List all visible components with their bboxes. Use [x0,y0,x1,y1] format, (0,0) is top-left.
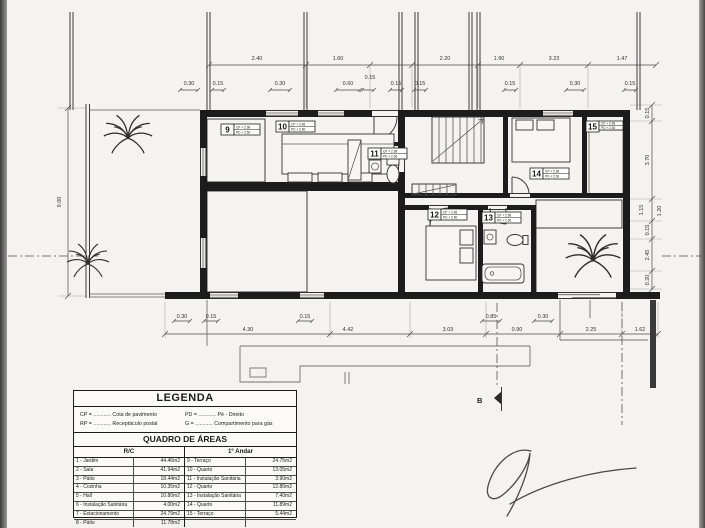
room-name-cell: 13 - Instalação Sanitária [185,493,246,501]
dim-label: 0.15 [625,81,636,87]
room-name-cell [185,520,246,528]
room-area-cell: 11.89m2 [246,502,296,510]
areas-table-headers: R/C 1º Andar [74,447,296,458]
table-row: 11 - Instalação Sanitária3.90m2 [185,476,296,485]
dim-label: 0.15 [505,81,516,87]
room-name-cell: 15 - Terraço [185,511,246,519]
room-area-cell: 24.75m2 [246,458,296,466]
bed-room-12 [426,226,476,280]
section-marker-label: B [477,396,483,405]
room-cp-tag: CP + 2.98 [443,210,457,214]
toilet-room-13 [507,235,528,246]
room-area-cell: 12.86m2 [246,484,296,492]
room-number: 9 [225,126,230,135]
room-label-11: 11 CP + 2.98 PD + 2.60 [368,148,407,159]
room-label-15: 15 CP + 2.98 PD + 2.60 [586,121,623,132]
room-number: 14 [532,170,541,179]
walls [165,110,660,299]
room-cp-tag: CP + 2.98 [236,125,250,129]
table-row: 9 - Terraço24.75m2 [185,458,296,467]
room-number: 11 [370,150,379,159]
room-name-cell: 8 - Pátio [74,520,134,528]
room-pd-tag: PD + 2.60 [383,155,397,159]
table-row: 3 - Pátio18.44m2 [74,476,184,485]
dim-label: 0.90 [512,327,523,333]
dim-label: 0.30 [275,81,286,87]
dim-label: 0.30 [570,81,581,87]
dim-label: 0.15 [415,81,426,87]
toilet-room-11 [387,158,399,183]
dim-label: 0.15 [300,314,311,320]
room-area-cell: 10.35m2 [134,484,184,492]
dim-label: 2.45 [645,250,651,261]
table-row: 12 - Quarto12.86m2 [185,484,296,493]
room-name-cell: 6 - Instalação Sanitária [74,502,134,510]
dim-label: 0.15 [645,225,651,236]
room-area-cell: 10.80m2 [134,493,184,501]
room-pd-tag: PD + 2.60 [497,219,511,223]
bed-room-14 [512,118,570,162]
areas-column-first-floor: 9 - Terraço24.75m2 10 - Quarto13.05m2 11… [185,458,296,527]
dim-label: 3.70 [645,155,651,166]
palm-tree-icon [104,115,152,153]
dim-label: 0.30 [184,81,195,87]
room-pd-tag: PD + 2.60 [291,128,305,132]
table-row: 1 - Jardim44.46m2 [74,458,184,467]
staircase [412,117,484,195]
bathtub-room-13 [482,264,524,283]
dim-label: 2.20 [440,56,451,62]
dim-label: 1.47 [617,56,628,62]
room-pd-tag: PD + 2.60 [236,131,250,135]
left-dimension-chain: 9.00 [8,105,98,299]
room-label-12: 12 CP + 2.98 PD + 2.60 [428,209,467,220]
areas-table-body: 1 - Jardim44.46m2 2 - Sala41.94m2 3 - Pá… [74,458,296,527]
room-area-cell: 24.79m2 [134,511,184,519]
room-area-cell: 41.94m2 [134,467,184,475]
dim-label: 0.15 [391,81,402,87]
dim-label: 0.15 [213,81,224,87]
room-pd-tag: PD + 2.60 [443,216,457,220]
table-row: 13 - Instalação Sanitária7.40m2 [185,493,296,502]
room-number: 15 [588,123,597,132]
dim-label: 1.60 [333,56,344,62]
table-row: 14 - Quarto11.89m2 [185,502,296,511]
room-name-cell: 2 - Sala [74,467,134,475]
areas-column-rc: 1 - Jardim44.46m2 2 - Sala41.94m2 3 - Pá… [74,458,185,527]
palm-tree-icon [566,235,621,278]
legend-title: LEGENDA [74,391,296,407]
room-number: 10 [278,123,287,132]
dim-label: 0.15 [645,108,651,119]
table-row: 6 - Instalação Sanitária4.00m2 [74,502,184,511]
room-area-cell: 5.44m2 [246,511,296,519]
legend-entry-g: G = ............ Compartimento para gás [185,421,290,427]
table-row: 2 - Sala41.94m2 [74,467,184,476]
room-area-cell [246,520,296,528]
dim-label: 0.30 [538,314,549,320]
room-pd-tag: PD + 2.60 [545,175,559,179]
dim-label: 1.62 [635,327,646,333]
legend-entries: CP = ............ Cota de pavimento PD =… [74,407,296,433]
room-cp-tag: CP + 2.98 [291,122,305,126]
room-name-cell: 1 - Jardim [74,458,134,466]
room-name-cell: 5 - Hall [74,493,134,501]
room-pd-tag: PD + 2.60 [601,126,615,130]
dim-label: 2.40 [252,56,263,62]
room-number: 12 [430,211,439,220]
dim-label: 9.00 [57,197,63,208]
sink-room-11 [369,160,381,173]
room-number: 13 [484,214,493,223]
room-name-cell: 7 - Estacionamento [74,511,134,519]
room-name-cell: 12 - Quarto [185,484,246,492]
room-label-10: 10 CP + 2.98 PD + 2.60 [276,121,315,132]
table-row: 5 - Hall10.80m2 [74,493,184,502]
dim-label: 0.20 [645,275,651,286]
table-row: 15 - Terraço5.44m2 [185,511,296,520]
dim-label: 4.30 [243,327,254,333]
room-name-cell: 4 - Cozinha [74,484,134,492]
legend-and-areas-table: LEGENDA CP = ............ Cota de pavime… [73,390,297,518]
legend-entry-rp: RP = ............ Receptáculo postal [80,421,185,427]
dim-label: 0.60 [343,81,354,87]
room-label-14: 14 CP + 2.98 PD + 2.60 [530,168,569,179]
room-label-13: 13 CP + 2.98 PD + 2.60 [482,212,521,223]
table-row: 10 - Quarto13.05m2 [185,467,296,476]
room-name-cell: 9 - Terraço [185,458,246,466]
areas-table-title: QUADRO DE ÁREAS [74,433,296,447]
room-name-cell: 14 - Quarto [185,502,246,510]
terrace-15-slatted-area [589,130,623,194]
room-cp-tag: CP + 2.98 [601,122,615,126]
dim-label: 2.25 [586,327,597,333]
room-cp-tag: CP + 2.98 [383,149,397,153]
table-row: 8 - Pátio11.78m2 [74,520,184,528]
right-dimension-chain: 0.15 3.70 1.15 1.20 0.15 2.45 0.20 [630,102,702,292]
table-row: 4 - Cozinha10.35m2 [74,484,184,493]
dim-label: 1.90 [494,56,505,62]
room-area-cell: 11.78m2 [134,520,184,528]
room-area-cell: 7.40m2 [246,493,296,501]
room-cp-tag: CP + 2.98 [497,213,511,217]
dim-label: 3.23 [549,56,560,62]
room-area-cell: 44.46m2 [134,458,184,466]
section-arrow-icon [494,391,502,405]
legend-entry-cp: CP = ............ Cota de pavimento [80,412,185,418]
dim-label: 1.20 [657,206,663,217]
dim-label: 0.15 [365,75,376,81]
sink-room-13 [484,230,496,244]
room-area-cell: 13.05m2 [246,467,296,475]
closet-room-10 [348,140,361,180]
bottom-dimension-chain: 4.30 4.42 3.03 0.90 2.25 1.62 0.30 0.15 … [162,302,661,338]
table-row: 7 - Estacionamento24.79m2 [74,511,184,520]
room-name-cell: 10 - Quarto [185,467,246,475]
dim-label: 0.30 [177,314,188,320]
palm-tree-icon [67,244,109,277]
legend-entry-pd: PD = ............ Pé - Direito [185,412,290,418]
room-label-9: 9 CP + 2.98 PD + 2.60 [221,124,260,135]
dim-label: 4.42 [343,327,354,333]
room-area-cell: 18.44m2 [134,476,184,484]
room-area-cell: 3.90m2 [246,476,296,484]
signature [487,450,636,516]
dim-label: 1.15 [639,205,645,216]
areas-header-first-floor: 1º Andar [185,447,296,457]
areas-header-rc: R/C [74,447,185,457]
scanned-floor-plan-page: 2.40 1.60 2.20 1.90 3.23 1.47 0.30 0.15 … [0,0,705,528]
room-cp-tag: CP + 2.98 [545,169,559,173]
room-name-cell: 11 - Instalação Sanitária [185,476,246,484]
dim-label: 3.03 [443,327,454,333]
table-row [185,520,296,528]
room-name-cell: 3 - Pátio [74,476,134,484]
room-area-cell: 4.00m2 [134,502,184,510]
dim-label: 0.85 [486,314,497,320]
